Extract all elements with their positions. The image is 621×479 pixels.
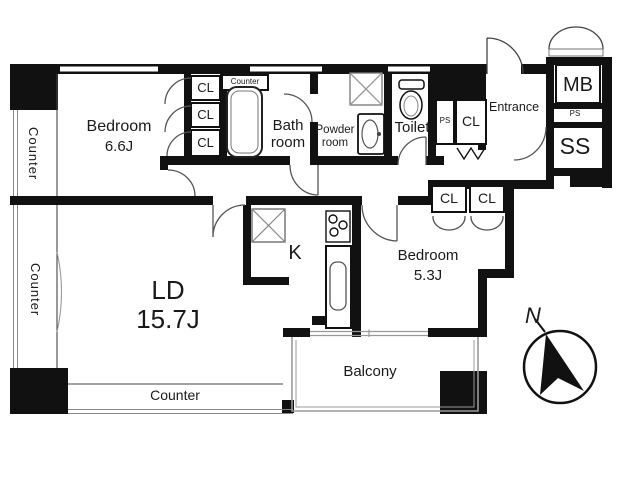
wall	[310, 74, 318, 94]
room-label-bedroom1: Bedroom	[73, 119, 165, 136]
wall	[10, 196, 168, 205]
wall	[352, 205, 361, 337]
pipe-space-label: PS	[436, 117, 454, 125]
floor-plan-drawing	[0, 0, 621, 479]
meter-box-label: MB	[553, 75, 603, 96]
closet-label: CL	[432, 191, 466, 206]
counter-label-bottom: Counter	[110, 388, 240, 403]
sink-icon	[358, 114, 384, 154]
window	[14, 110, 18, 196]
floor-plan: Bedroom 6.6J CL CL CL Counter Bath room …	[0, 0, 621, 479]
toilet-icon	[399, 80, 424, 119]
wall	[243, 277, 289, 285]
wall-pillar	[10, 64, 58, 110]
wall	[283, 328, 310, 337]
wall-pillar	[10, 368, 68, 414]
wall	[546, 57, 612, 65]
stove-icon	[326, 211, 350, 242]
washer-icon	[350, 73, 382, 105]
kitchen-sink-icon	[326, 246, 351, 328]
closet-label: CL	[456, 114, 486, 129]
wall	[521, 64, 546, 74]
room-label-powder-line1: Powder	[312, 124, 358, 136]
room-area-bedroom2: 5.3J	[382, 268, 474, 284]
room-label-bath-line2: room	[262, 135, 314, 151]
closet-label: CL	[191, 81, 220, 95]
door-arc	[398, 137, 426, 165]
door-arc	[168, 170, 195, 196]
closet-label: CL	[470, 191, 504, 206]
counter-label-left-upper: Counter	[26, 112, 41, 196]
pipe-space-label: PS	[548, 110, 602, 118]
room-label-toilet: Toilet	[387, 120, 437, 136]
wall	[318, 156, 398, 165]
room-label-bath-line1: Bath	[262, 118, 314, 134]
bathtub-icon	[227, 87, 262, 157]
counter-label-bath: Counter	[222, 78, 268, 86]
wall	[546, 122, 602, 128]
meter-box-doors	[549, 27, 603, 56]
door-arc	[213, 205, 245, 237]
counter-label-left-lower: Counter	[28, 238, 43, 342]
room-label-powder-line2: room	[312, 137, 358, 149]
wall	[166, 156, 227, 165]
balcony-pillar	[440, 371, 487, 414]
window	[68, 410, 293, 414]
wall	[184, 74, 191, 158]
sliding-window	[310, 330, 428, 338]
wall-block	[428, 74, 486, 102]
room-label-balcony: Balcony	[328, 364, 412, 380]
wall	[546, 168, 574, 176]
room-label-kitchen: K	[282, 243, 308, 264]
wall	[160, 156, 168, 170]
door-arc	[514, 127, 546, 160]
room-label-ld: LD	[118, 277, 218, 304]
wall	[478, 269, 514, 278]
closet-label: CL	[191, 136, 220, 150]
wall	[505, 180, 514, 278]
refrigerator-icon	[252, 209, 285, 242]
room-area-ld: 15.7J	[118, 306, 218, 333]
door-arc	[362, 205, 397, 241]
wall	[428, 328, 483, 337]
storage-label: SS	[550, 134, 600, 158]
door-arc	[290, 165, 318, 195]
wall	[246, 196, 362, 205]
wall	[243, 205, 251, 285]
counter-curve	[57, 252, 62, 332]
wall	[570, 168, 612, 187]
wall	[168, 196, 213, 205]
room-label-entrance: Entrance	[482, 101, 546, 114]
room-area-bedroom1: 6.6J	[73, 139, 165, 155]
entrance-door-arc	[487, 38, 523, 74]
wall	[384, 74, 392, 156]
closet-label: CL	[191, 108, 220, 122]
compass-icon	[524, 319, 596, 403]
compass-north-label: N	[518, 304, 548, 327]
window	[14, 205, 18, 368]
room-label-bedroom2: Bedroom	[382, 248, 474, 264]
